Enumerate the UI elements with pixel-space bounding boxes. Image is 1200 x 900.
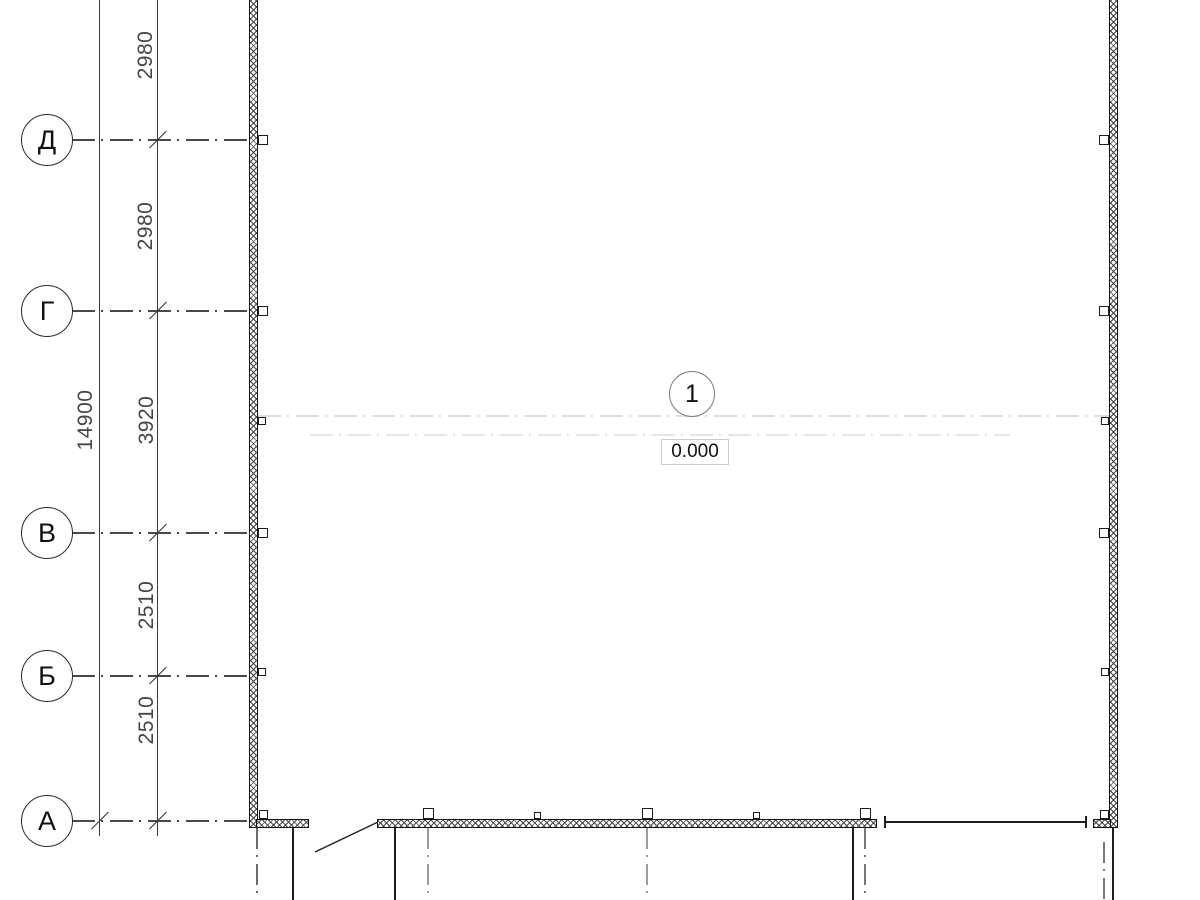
- column-marker: [423, 808, 434, 819]
- below-wall-edge-line: [292, 828, 294, 900]
- below-wall-centerline: [427, 828, 429, 900]
- below-wall-edge-line: [852, 828, 854, 900]
- column-marker: [534, 812, 541, 819]
- below-wall-centerline: [646, 828, 648, 900]
- axis-label: Б: [38, 661, 56, 692]
- bottom-wall-main-segment: [377, 819, 877, 828]
- axis-bubble-v: В: [21, 507, 73, 559]
- overall-dimension-line: [99, 0, 100, 836]
- below-wall-centerline: [864, 828, 866, 900]
- axis-label: Д: [38, 125, 56, 156]
- below-wall-centerline: [256, 828, 258, 900]
- faint-intermediate-line-2: [310, 434, 1010, 436]
- span-dimension-text-5: 2510: [135, 696, 159, 745]
- axis-line-b: [72, 675, 258, 677]
- floor-level-mark: 0.000: [661, 439, 729, 465]
- axis-bubble-d: Д: [21, 114, 73, 166]
- column-marker: [1101, 417, 1109, 425]
- opening-jamb-tick: [884, 816, 886, 828]
- column-marker: [1100, 810, 1109, 819]
- column-marker: [259, 810, 268, 819]
- room-number-tag: 1: [669, 371, 715, 417]
- span-dimension-text-4: 2510: [135, 581, 159, 630]
- left-wall: [249, 0, 258, 828]
- floor-level-value: 0.000: [671, 441, 719, 463]
- column-marker: [753, 812, 760, 819]
- axis-bubble-a: А: [21, 795, 73, 847]
- column-marker: [258, 417, 266, 425]
- column-marker: [258, 306, 268, 316]
- column-marker: [258, 668, 266, 676]
- door-leaf-line: [0, 0, 1200, 900]
- right-wall: [1109, 0, 1118, 828]
- floor-plan-canvas: Д Г В Б А 14900 2980 2980 3920 2510 2510: [0, 0, 1200, 900]
- bottom-wall-left-segment: [256, 819, 309, 828]
- column-marker: [1099, 306, 1109, 316]
- axis-bubble-b: Б: [21, 650, 73, 702]
- column-marker: [860, 808, 871, 819]
- column-marker: [1101, 668, 1109, 676]
- below-wall-edge-line: [394, 828, 396, 900]
- below-wall-centerline: [1103, 842, 1105, 900]
- opening-jamb-tick: [1085, 816, 1087, 828]
- axis-label: В: [38, 518, 56, 549]
- column-marker: [1099, 135, 1109, 145]
- span-dimension-text-3: 3920: [135, 396, 159, 445]
- room-number: 1: [685, 380, 699, 409]
- span-dimension-text-1: 2980: [134, 31, 158, 80]
- axis-label: А: [38, 806, 56, 837]
- column-marker: [1099, 528, 1109, 538]
- opening-sill-line: [885, 821, 1087, 823]
- axis-line-v: [72, 532, 258, 534]
- span-dimension-text-2: 2980: [134, 202, 158, 251]
- column-marker: [258, 135, 268, 145]
- overall-dimension-text: 14900: [74, 390, 98, 451]
- axis-line-d: [72, 139, 258, 141]
- column-marker: [642, 808, 653, 819]
- column-marker: [258, 528, 268, 538]
- axis-line-g: [72, 310, 258, 312]
- axis-bubble-g: Г: [21, 285, 73, 337]
- axis-label: Г: [40, 296, 55, 327]
- below-wall-edge-line: [1112, 828, 1114, 900]
- bottom-wall-right-corner: [1093, 819, 1111, 828]
